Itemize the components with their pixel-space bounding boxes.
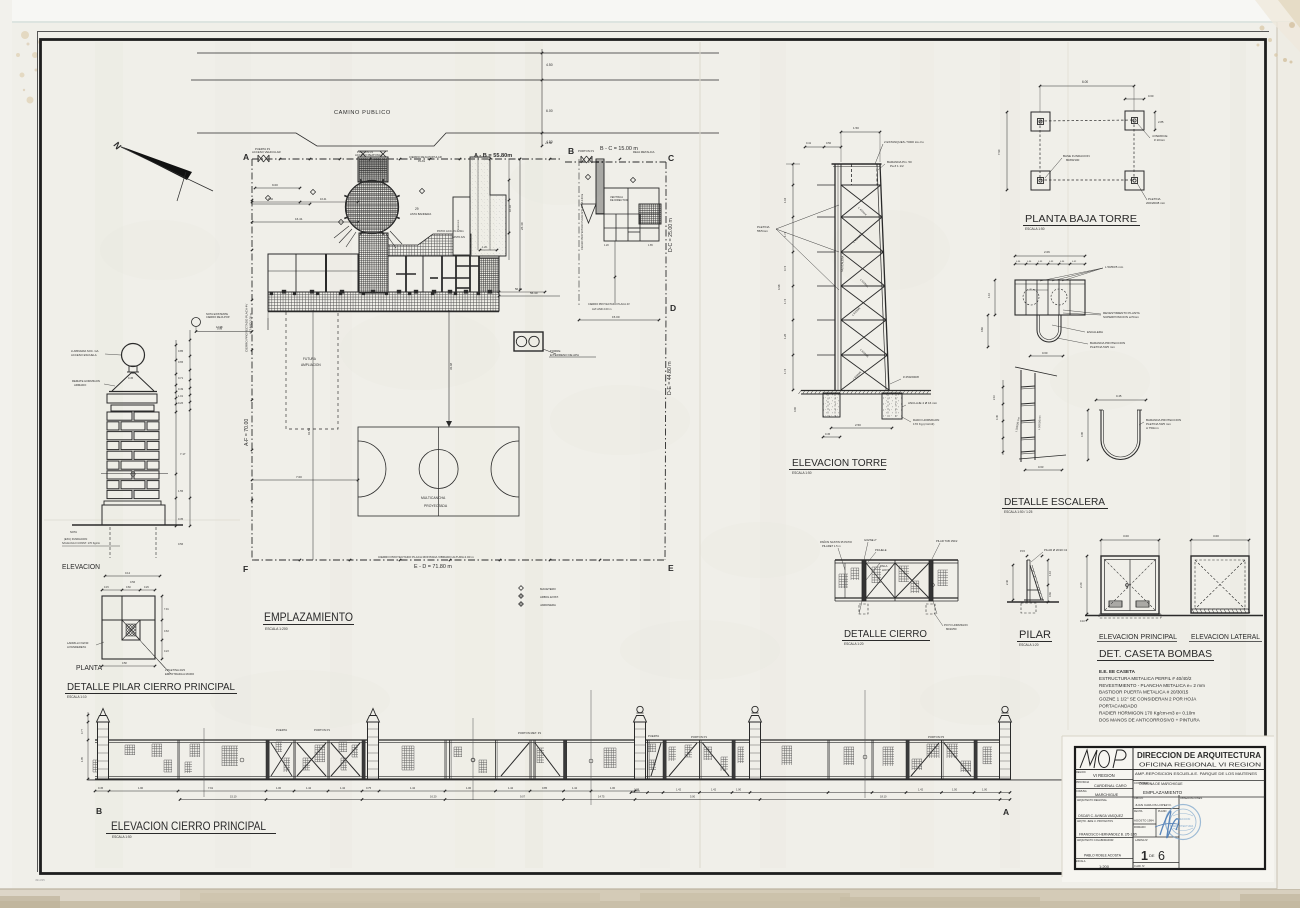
svg-text:0.96: 0.96 <box>1081 432 1084 437</box>
svg-text:PROYECTADA: PROYECTADA <box>424 504 448 508</box>
svg-text:LAMINA Nº: LAMINA Nº <box>1135 838 1148 842</box>
svg-text:ESCALA 1:10: ESCALA 1:10 <box>67 695 87 699</box>
svg-text:C: C <box>668 153 674 163</box>
svg-text:# 10mm: # 10mm <box>1154 138 1165 142</box>
svg-text:A-F = 70.00: A-F = 70.00 <box>244 419 250 446</box>
svg-text:0.74: 0.74 <box>783 265 787 271</box>
svg-text:FIRMADO: FIRMADO <box>1134 826 1146 829</box>
svg-text:Pa # 1 1/2: Pa # 1 1/2 <box>890 164 904 168</box>
svg-text:ALT-AND 2.00 m: ALT-AND 2.00 m <box>249 312 253 334</box>
svg-text:PICHELE: PICHELE <box>875 548 887 552</box>
svg-text:5.00: 5.00 <box>690 795 696 799</box>
svg-text:1.74: 1.74 <box>783 298 787 304</box>
svg-text:DIBUJO: DIBUJO <box>1134 797 1143 800</box>
svg-text:1.42: 1.42 <box>340 786 346 790</box>
svg-text:L 50/50/5 mm: L 50/50/5 mm <box>1105 265 1124 269</box>
svg-text:7.91: 7.91 <box>164 608 169 611</box>
svg-text:ARQTO. JEFE U. PROYECTOS: ARQTO. JEFE U. PROYECTOS <box>1077 820 1113 823</box>
svg-text:0.45: 0.45 <box>128 376 134 380</box>
svg-text:E - D = 71.80 m: E - D = 71.80 m <box>414 564 452 570</box>
svg-text:2.40: 2.40 <box>1005 579 1009 585</box>
svg-text:1.26: 1.26 <box>783 333 787 339</box>
svg-text:PORTON P1: PORTON P1 <box>691 735 708 739</box>
svg-text:EMPLAZAMIENTO: EMPLAZAMIENTO <box>264 610 353 624</box>
svg-text:ESCALA 1:200: ESCALA 1:200 <box>265 627 288 631</box>
svg-text:ESCALA 1:20: ESCALA 1:20 <box>1019 643 1039 647</box>
svg-text:1.00: 1.00 <box>276 786 282 790</box>
svg-text:16.41: 16.41 <box>320 197 327 201</box>
svg-text:+4.50: +4.50 <box>545 141 553 145</box>
svg-text:1.42: 1.42 <box>572 786 578 790</box>
svg-text:1.90: 1.90 <box>138 786 144 790</box>
svg-text:0.49: 0.49 <box>178 387 184 391</box>
svg-text:2 ESTANQUES / 5000 Lts c/u: 2 ESTANQUES / 5000 Lts c/u <box>884 140 924 144</box>
svg-text:0.45: 0.45 <box>98 786 104 790</box>
svg-text:0.90: 0.90 <box>793 406 797 412</box>
svg-text:CARDENAL CARO: CARDENAL CARO <box>1094 784 1127 788</box>
svg-text:0.60: 0.60 <box>126 586 131 589</box>
svg-text:A 750mm: A 750mm <box>1146 426 1159 430</box>
svg-text:16.41: 16.41 <box>295 217 303 221</box>
svg-text:1.55: 1.55 <box>178 489 184 493</box>
svg-text:0.29: 0.29 <box>144 586 149 589</box>
svg-text:PUERTA: PUERTA <box>648 734 659 738</box>
svg-text:CIERRO PROYECTADO PLACA 4V: CIERRO PROYECTADO PLACA 4V <box>588 302 630 306</box>
svg-text:P.15: P.15 <box>1020 549 1026 553</box>
svg-text:2.50: 2.50 <box>855 423 861 427</box>
svg-text:OBSERVACIONES: OBSERVACIONES <box>1180 796 1203 800</box>
svg-text:A: A <box>1003 807 1009 817</box>
svg-text:E.E. EE CASETA: E.E. EE CASETA <box>1099 669 1136 674</box>
svg-text:AGOSTO 1994: AGOSTO 1994 <box>1134 819 1154 823</box>
svg-text:1.42: 1.42 <box>508 786 514 790</box>
svg-text:JUAN CARLOS LOPEZ D.: JUAN CARLOS LOPEZ D. <box>1135 803 1172 807</box>
svg-text:16.02: 16.02 <box>508 205 512 212</box>
svg-text:2.10: 2.10 <box>993 395 996 400</box>
svg-text:MARCHIGUE: MARCHIGUE <box>1095 793 1119 797</box>
svg-text:PORTON P3: PORTON P3 <box>928 735 945 739</box>
svg-text:CIERRO PROYECTADO PLACA MO: CIERRO PROYECTADO PLACA MONTADA VIBRADO … <box>378 555 474 559</box>
svg-text:18.10: 18.10 <box>880 795 887 799</box>
svg-text:1.42: 1.42 <box>410 786 416 790</box>
svg-text:0.41: 0.41 <box>806 141 812 145</box>
svg-text:9.00: 9.00 <box>272 183 278 187</box>
svg-text:D-C = 25.00 m: D-C = 25.00 m <box>668 218 674 252</box>
svg-text:GOZNE 2": GOZNE 2" <box>864 538 877 542</box>
svg-text:PILAR Ø 20/20 C2: PILAR Ø 20/20 C2 <box>1044 548 1068 552</box>
svg-text:DE: DE <box>1149 853 1155 858</box>
svg-text:PILAR: PILAR <box>1019 629 1051 641</box>
svg-text:E: E <box>668 563 674 573</box>
svg-text:1.42: 1.42 <box>918 788 924 792</box>
svg-text:PAILA: PAILA <box>880 564 888 568</box>
svg-text:0.15: 0.15 <box>104 586 109 589</box>
svg-text:S/CALCULO CONST. 170 Kg/cm: S/CALCULO CONST. 170 Kg/cm <box>62 541 100 545</box>
svg-text:15.10: 15.10 <box>230 795 237 799</box>
svg-text:6.00: 6.00 <box>546 109 553 113</box>
svg-text:ESCALERA: ESCALERA <box>1087 330 1103 334</box>
svg-text:NOTA: NOTA <box>70 530 77 534</box>
svg-text:# 250/200/8: # 250/200/8 <box>903 375 919 379</box>
svg-text:ACCESO ESCUELA: ACCESO ESCUELA <box>71 353 97 357</box>
svg-text:PORTON MET. P1: PORTON MET. P1 <box>518 731 542 735</box>
svg-text:0.45: 0.45 <box>1116 394 1122 398</box>
svg-text:ELEVACION: ELEVACION <box>62 564 100 571</box>
svg-text:PLANTA: PLANTA <box>76 665 102 672</box>
svg-text:ESTRUCTURA METALICA PERFIL: ESTRUCTURA METALICA PERFIL # 40/40/2 <box>1099 676 1192 681</box>
svg-text:DE DIRECTOR: DE DIRECTOR <box>610 198 628 202</box>
svg-text:ESCALA 1:20: ESCALA 1:20 <box>844 642 864 646</box>
svg-text:1.00: 1.00 <box>982 788 988 792</box>
svg-text:26.40: 26.40 <box>520 222 524 230</box>
svg-text:ELEVACION PRINCIPAL: ELEVACION PRINCIPAL <box>1099 634 1177 641</box>
svg-text:9.07: 9.07 <box>520 795 526 799</box>
svg-text:0.36: 0.36 <box>1049 592 1052 597</box>
svg-text:200/200/8 mm: 200/200/8 mm <box>1146 201 1166 205</box>
svg-text:EMPOTRADA A MURO: EMPOTRADA A MURO <box>165 672 195 676</box>
svg-text:PILAS: PILAS <box>418 160 425 163</box>
svg-text:1.50: 1.50 <box>952 788 958 792</box>
svg-text:1: 1 <box>1141 849 1148 863</box>
svg-text:3.00: 3.00 <box>1213 534 1219 538</box>
svg-text:0.60: 0.60 <box>1148 94 1154 98</box>
svg-text:16.20: 16.20 <box>430 795 437 799</box>
svg-text:A: A <box>243 152 249 162</box>
svg-text:1:200: 1:200 <box>1099 864 1110 869</box>
svg-text:0.85: 0.85 <box>178 349 184 353</box>
svg-text:56.40: 56.40 <box>530 291 538 295</box>
svg-text:REJA METALICA: REJA METALICA <box>633 150 655 154</box>
svg-text:0.56: 0.56 <box>130 580 136 584</box>
svg-text:DIRECCION DE ARQUITECTURA: DIRECCION DE ARQUITECTURA <box>1137 751 1261 760</box>
svg-text:ARQUITECTURA: ARQUITECTURA <box>1173 824 1194 828</box>
svg-text:1.65: 1.65 <box>648 244 653 247</box>
svg-text:PASTO A/N: PASTO A/N <box>452 236 465 239</box>
svg-text:0.56: 0.56 <box>178 542 184 546</box>
svg-text:0.71: 0.71 <box>178 376 184 380</box>
svg-text:1.20: 1.20 <box>604 244 609 247</box>
svg-text:ALT-AND 2.00 m: ALT-AND 2.00 m <box>592 307 611 311</box>
svg-text:DIRECCION: DIRECCION <box>1176 817 1191 821</box>
svg-text:REGION: REGION <box>1076 771 1086 774</box>
svg-text:DETALLE ESCALERA: DETALLE ESCALERA <box>1004 496 1105 508</box>
svg-text:ESCALA 1:50: ESCALA 1:50 <box>1025 227 1045 231</box>
svg-text:0.58: 0.58 <box>122 662 127 665</box>
svg-text:ACCESO PEATONAL: ACCESO PEATONAL <box>355 153 383 157</box>
svg-text:PILARET 1.5 m: PILARET 1.5 m <box>822 544 841 548</box>
svg-text:0.60: 0.60 <box>1042 351 1048 355</box>
svg-text:0.88: 0.88 <box>981 327 984 332</box>
svg-text:0.65: 0.65 <box>178 360 184 364</box>
svg-text:ELEVACION TORRE: ELEVACION TORRE <box>792 457 887 469</box>
svg-text:CUAD. Nº: CUAD. Nº <box>1134 864 1145 868</box>
svg-text:0.23: 0.23 <box>164 650 169 653</box>
svg-text:1.42: 1.42 <box>711 788 717 792</box>
svg-text:PORTON P1: PORTON P1 <box>314 728 331 732</box>
svg-text:OSCAR C. AVINGA VASQUEZ: OSCAR C. AVINGA VASQUEZ <box>1078 814 1123 818</box>
svg-text:PLETINA 50/5 mm: PLETINA 50/5 mm <box>1090 345 1115 349</box>
svg-text:D-E = 44.80 m: D-E = 44.80 m <box>667 361 673 395</box>
svg-text:S/ESCALERA: S/ESCALERA <box>840 255 845 272</box>
svg-text:0.75: 0.75 <box>366 786 372 790</box>
svg-text:ANCLAJE 4 Ø 16 mm: ANCLAJE 4 Ø 16 mm <box>908 401 938 405</box>
svg-text:ELEVACION LATERAL: ELEVACION LATERAL <box>1191 634 1260 641</box>
svg-text:D: D <box>670 303 676 313</box>
svg-text:80/80/100: 80/80/100 <box>1066 158 1080 162</box>
svg-text:1.00: 1.00 <box>610 786 616 790</box>
svg-text:MULTICANCHA: MULTICANCHA <box>421 496 446 500</box>
svg-text:ARMADO: ARMADO <box>74 383 87 387</box>
svg-text:B: B <box>568 146 574 156</box>
svg-text:6: 6 <box>1158 849 1165 863</box>
svg-text:63.55: 63.55 <box>307 428 311 435</box>
svg-text:AMPLIACION: AMPLIACION <box>301 363 321 367</box>
svg-text:PORTACANDADO: PORTACANDADO <box>1099 704 1138 709</box>
svg-text:A PANDERETA: A PANDERETA <box>67 645 86 649</box>
svg-text:1.04: 1.04 <box>783 197 787 203</box>
svg-text:DETALLE PILAR CIERRO PRINCIPAL: DETALLE PILAR CIERRO PRINCIPAL <box>67 681 235 693</box>
svg-text:0.45: 0.45 <box>825 432 831 436</box>
svg-text:14.75: 14.75 <box>598 795 605 799</box>
svg-text:RADIER HORMIGON 170 Kg/cm-m3: RADIER HORMIGON 170 Kg/cm-m3 e= 0.10m <box>1099 710 1195 715</box>
svg-text:0.85: 0.85 <box>542 786 548 790</box>
svg-text:ARQUITECTO COLABORADOR: ARQUITECTO COLABORADOR <box>1077 839 1114 842</box>
svg-text:0.63: 0.63 <box>164 630 169 633</box>
svg-text:1.74: 1.74 <box>783 368 787 374</box>
svg-text:E/TERRENO DE APA: E/TERRENO DE APA <box>550 353 579 357</box>
svg-text:12.98: 12.98 <box>216 325 223 329</box>
svg-text:CIERRO REJA POP.: CIERRO REJA POP. <box>206 315 230 319</box>
svg-text:ACCESO VEHICULAR: ACCESO VEHICULAR <box>252 150 281 154</box>
svg-text:PUERTA: PUERTA <box>276 728 287 732</box>
svg-text:2.20: 2.20 <box>1079 582 1083 588</box>
svg-text:29: 29 <box>415 207 419 211</box>
svg-text:EMPLAZAMIENTO: EMPLAZAMIENTO <box>1143 790 1183 795</box>
svg-text:DOS MANOS DE ANTICORROSIVO: DOS MANOS DE ANTICORROSIVO + PINTURA <box>1099 717 1201 722</box>
svg-text:FUTURA: FUTURA <box>303 357 317 361</box>
svg-text:BASTIDOR PUERTA METALICA #: BASTIDOR PUERTA METALICA # 20/30/15 <box>1099 690 1189 695</box>
svg-text:ASTA BANDERA: ASTA BANDERA <box>410 212 431 216</box>
svg-text:0.77: 0.77 <box>81 729 84 734</box>
svg-text:FECHA: FECHA <box>1134 810 1143 813</box>
svg-text:MACETERO: MACETERO <box>540 587 557 591</box>
svg-text:56.40: 56.40 <box>515 287 522 291</box>
svg-text:0.88: 0.88 <box>634 788 640 792</box>
svg-text:7.00: 7.00 <box>296 475 302 479</box>
svg-text:PABLO ROBLE ACOSTA: PABLO ROBLE ACOSTA <box>1084 854 1122 858</box>
svg-text:PLANO: PLANO <box>1158 810 1167 813</box>
svg-text:6.98: 6.98 <box>777 284 781 290</box>
svg-text:CIERRO REJA POPULAR: CIERRO REJA POPULAR <box>409 155 442 159</box>
svg-text:JARDINERA: JARDINERA <box>540 603 556 607</box>
svg-text:PATIO ACC. N 220m: PATIO ACC. N 220m <box>437 229 464 233</box>
svg-text:PLANTA BAJA TORRE: PLANTA BAJA TORRE <box>1025 213 1137 225</box>
svg-text:1.01: 1.01 <box>178 394 184 398</box>
svg-text:PORTON P1: PORTON P1 <box>578 149 595 153</box>
svg-text:ARBOL EXIST.: ARBOL EXIST. <box>540 595 559 599</box>
svg-text:0.63: 0.63 <box>1038 465 1044 469</box>
svg-text:33.48: 33.48 <box>449 363 453 370</box>
svg-text:ARQUITECTO REGIONAL: ARQUITECTO REGIONAL <box>1077 799 1108 802</box>
svg-text:GOZNE 1 1/2" SE CONSIDERAN: GOZNE 1 1/2" SE CONSIDERAN 2 POR HOJA <box>1099 697 1197 702</box>
svg-text:80/20/50: 80/20/50 <box>946 627 957 631</box>
svg-text:0.45: 0.45 <box>996 415 999 420</box>
svg-text:55/5mm: 55/5mm <box>757 229 768 233</box>
svg-text:CAMINO PUBLICO: CAMINO PUBLICO <box>334 110 391 116</box>
svg-text:B: B <box>96 806 102 816</box>
svg-text:1.00: 1.00 <box>466 786 472 790</box>
svg-text:4.50: 4.50 <box>546 63 553 67</box>
svg-text:6.00: 6.00 <box>1082 80 1088 84</box>
svg-text:DETALLE CIERRO: DETALLE CIERRO <box>844 628 927 640</box>
svg-text:VI REGION: VI REGION <box>1093 773 1115 778</box>
svg-text:REVESTIMIENTO - PLANCHA METAL: REVESTIMIENTO - PLANCHA METALICA e= 2 mm <box>1099 683 1205 688</box>
svg-text:1.42: 1.42 <box>306 786 312 790</box>
svg-text:HOYA: HOYA <box>882 568 890 572</box>
svg-text:0.35: 0.35 <box>178 517 184 521</box>
svg-text:FRANCISCO HERNANDEZ B. 2/5-: FRANCISCO HERNANDEZ B. 2/5-1.95 <box>1079 833 1137 837</box>
svg-text:7.91: 7.91 <box>208 786 214 790</box>
svg-text:49x335: 49x335 <box>35 878 45 882</box>
svg-text:1.42: 1.42 <box>676 788 682 792</box>
svg-text:CONTENIDO: CONTENIDO <box>1134 782 1149 785</box>
svg-text:POYO HORMIGON: POYO HORMIGON <box>944 623 968 627</box>
svg-text:AMP-REPOSICION ESCUELA E. P: AMP-REPOSICION ESCUELA E. PARQUE DE LOS … <box>1135 772 1258 776</box>
svg-text:SUPERPOSICION a=5mm: SUPERPOSICION a=5mm <box>1103 315 1139 319</box>
svg-text:170 Kg (cm/m3): 170 Kg (cm/m3) <box>913 422 934 426</box>
svg-text:1.00: 1.00 <box>736 788 742 792</box>
svg-text:OFICINA REGIONAL VI: OFICINA REGIONAL VI REGION <box>1139 763 1261 769</box>
svg-text:7.17: 7.17 <box>180 452 186 456</box>
svg-text:0.10: 0.10 <box>1080 620 1085 623</box>
svg-text:9.60: 9.60 <box>268 197 274 201</box>
svg-text:2.85: 2.85 <box>1158 120 1164 124</box>
svg-text:1.50: 1.50 <box>853 126 859 130</box>
svg-text:ESCALA 1:50: ESCALA 1:50 <box>112 835 132 839</box>
svg-text:ESCALA 1:50: ESCALA 1:50 <box>792 471 812 475</box>
svg-text:15.00: 15.00 <box>612 315 620 319</box>
svg-text:1.10: 1.10 <box>1048 570 1052 576</box>
svg-text:0.50: 0.50 <box>826 141 832 145</box>
svg-text:PILAR TUB 150/2: PILAR TUB 150/2 <box>936 539 958 543</box>
svg-text:ELEVACION CIERRO PRINCIPAL: ELEVACION CIERRO PRINCIPAL <box>111 821 267 833</box>
svg-text:COMUNA: COMUNA <box>1076 790 1087 793</box>
svg-text:1.20: 1.20 <box>482 246 487 249</box>
svg-text:DET. CASETA BOMBAS: DET. CASETA BOMBAS <box>1099 648 1212 660</box>
svg-text:3.00: 3.00 <box>1123 534 1129 538</box>
svg-text:PROVINCIA: PROVINCIA <box>1076 781 1090 784</box>
svg-text:1.95: 1.95 <box>81 757 84 762</box>
svg-text:ESCALA: ESCALA <box>1076 860 1086 863</box>
svg-text:0.12: 0.12 <box>125 571 131 575</box>
svg-text:7.90: 7.90 <box>997 149 1001 155</box>
svg-text:0.26: 0.26 <box>178 401 184 405</box>
svg-text:ESCALA 1:50 / 1:25: ESCALA 1:50 / 1:25 <box>1004 510 1033 514</box>
svg-text:1.10: 1.10 <box>987 292 991 298</box>
svg-text:CIERRO PROYECTADO PLACA 4V ALT: CIERRO PROYECTADO PLACA 4V ALTURA 2.00 m <box>581 194 584 250</box>
svg-text:2.06: 2.06 <box>1044 250 1050 254</box>
svg-text:(EXC) FUNDACION: (EXC) FUNDACION <box>64 537 87 541</box>
svg-text:F: F <box>243 564 248 574</box>
